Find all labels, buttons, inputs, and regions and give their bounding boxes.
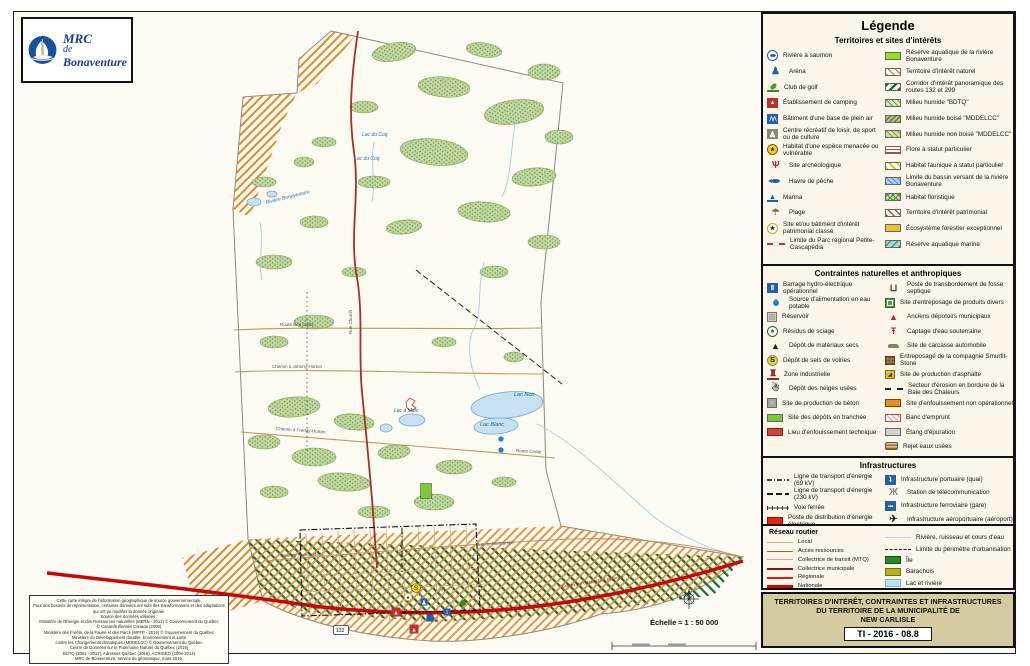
arena-icon bbox=[767, 67, 784, 77]
legend-item-label: Régionale bbox=[798, 574, 824, 580]
parklimit-icon bbox=[767, 243, 785, 245]
legend-item-label: Milieu humide non boisé "MDDELCC" bbox=[906, 131, 1011, 138]
tnat-icon bbox=[885, 68, 901, 76]
legend-item-label: Infrastructure aéroportuaire (aéroport) bbox=[907, 516, 1013, 523]
legend-box-infrastructures: Infrastructures Ligne de transport d'éne… bbox=[761, 456, 1015, 526]
nationale-icon bbox=[767, 585, 793, 588]
legend-item: Réservoir bbox=[767, 310, 881, 324]
map-canvas: ▲▲Sʇ♟★Ж Rivière BonaventureLac du CoqLac… bbox=[14, 12, 761, 651]
section-title-contraintes: Contraintes naturelles et anthropiques bbox=[767, 269, 1009, 278]
drop-icon bbox=[767, 298, 784, 308]
legend-item-label: Site et/ou bâtiment d'intérêt patrimonia… bbox=[783, 221, 881, 235]
credit-line: Pour des besoins de représentation, cert… bbox=[31, 603, 227, 608]
legend-item: Barrage hydro-électrique opérationnel bbox=[767, 281, 881, 295]
map-code: TI - 2016 - 08.8 bbox=[844, 627, 932, 641]
map-label: Rue Church bbox=[348, 309, 353, 334]
legend-item: Dépôt de sels de voiries bbox=[767, 353, 881, 367]
rejet-icon bbox=[885, 442, 898, 450]
riviereline-icon bbox=[885, 537, 911, 538]
legend-item-label: Limite du Parc régional Petite-Cascapédi… bbox=[790, 237, 881, 251]
credit-line: MRC de Bonaventure, service de géomatiqu… bbox=[31, 656, 227, 661]
marker-glyph: ▲ bbox=[393, 611, 399, 617]
legend-box-reseau-routier: Réseau routier LocalAccès ressourcesColl… bbox=[761, 524, 1015, 590]
legend-item: Dépôt des neiges usées bbox=[767, 382, 881, 396]
legend-item-label: Corridor d'intérêt panoramique des route… bbox=[906, 80, 1013, 94]
legend-item: Site de carcasse automobile bbox=[885, 339, 1013, 353]
acces-icon bbox=[767, 551, 793, 552]
legend-item-label: Limite du bassin versant de la rivière B… bbox=[906, 174, 1013, 188]
legend-item: Local bbox=[767, 538, 881, 547]
legend-item: Réserve aquatique de la rivière Bonavent… bbox=[885, 48, 1013, 64]
legend-item-label: Entreposage de la compagnie Smurfit-Ston… bbox=[900, 353, 1013, 367]
marker-glyph: S bbox=[414, 586, 418, 592]
legend-item-label: Secteur d'érosion en bordure de la Baie … bbox=[908, 382, 1013, 396]
legend-item: Lieu d'enfouissement technique bbox=[767, 425, 881, 439]
legend-title: Légende bbox=[767, 18, 1009, 33]
legend-item: Entreposage de la compagnie Smurfit-Ston… bbox=[885, 353, 1013, 367]
marker-glyph: Ж bbox=[439, 587, 446, 594]
legend-item: Bâtiment d'une base de plein air bbox=[767, 111, 881, 127]
legend-item-label: Site de production d'asphalte bbox=[900, 371, 981, 378]
colltransit-icon bbox=[767, 559, 793, 560]
legend-item: Habitat floristique bbox=[885, 189, 1013, 205]
legend-item-label: Voie ferrée bbox=[794, 504, 824, 511]
sciage-icon bbox=[767, 326, 778, 337]
golf-icon bbox=[767, 82, 779, 92]
legend-item: Source d'alimentation en eau potable bbox=[767, 295, 881, 309]
legend-item: Barachois bbox=[885, 566, 1013, 577]
legend-item-label: Site des dépôts en tranchée bbox=[788, 414, 866, 421]
legend-item-label: Réserve aquatique marine bbox=[906, 241, 980, 248]
legend-item-label: Club de golf bbox=[784, 84, 818, 91]
l69-icon bbox=[767, 479, 789, 481]
corridor-icon bbox=[885, 83, 901, 91]
legend-item: Habitat faunique à statut particulier bbox=[885, 158, 1013, 174]
legend-item-label: Milieu humide "BDTQ" bbox=[906, 99, 969, 106]
smurfit-icon bbox=[885, 356, 895, 365]
legend-item: Rejet eaux usées bbox=[885, 439, 1013, 453]
legend-item-label: Réservoir bbox=[782, 313, 809, 320]
credit-line: Ministère des Forêts, de la Faune et des… bbox=[31, 630, 227, 635]
legend-item: Station de télécommunication bbox=[885, 486, 1013, 499]
map-label: Lac Blanc bbox=[480, 422, 504, 428]
legend-item-label: Territoire d'intérêt naturel bbox=[906, 68, 975, 75]
legend-item-label: Infrastructure portuaire (quai) bbox=[901, 476, 983, 483]
legend-item: Milieu humide non boisé "MDDELCC" bbox=[885, 126, 1013, 142]
regionale-icon bbox=[767, 577, 793, 579]
legend-item: Accès ressources bbox=[767, 547, 881, 556]
section-title-territoires: Territoires et sites d'intérêts bbox=[767, 36, 1009, 45]
legend-item-label: Résidus de sciage bbox=[783, 328, 834, 335]
flore-icon bbox=[885, 146, 901, 154]
fishharbor-icon bbox=[767, 176, 784, 186]
archeo-icon bbox=[767, 161, 784, 171]
legend-item-label: Territoire d'intérêt patrimonial bbox=[906, 209, 987, 216]
legend-item: Établissement de camping bbox=[767, 95, 881, 111]
perimetre-icon bbox=[885, 549, 911, 550]
legend-item: Rivière à saumon bbox=[767, 48, 881, 64]
rail-icon bbox=[767, 506, 789, 510]
logo-line1: MRC bbox=[63, 32, 127, 46]
legend-item: Habitat d'une espèce menacée ou vulnérab… bbox=[767, 142, 881, 158]
logo-line3: Bonaventure bbox=[63, 56, 127, 69]
legend-item: Limite du Parc régional Petite-Cascapédi… bbox=[767, 236, 881, 252]
legend-item-label: Établissement de camping bbox=[783, 99, 857, 106]
turtle-icon bbox=[767, 144, 778, 155]
legend-item-label: Rejet eaux usées bbox=[903, 443, 952, 450]
title-line1: TERRITOIRES D'INTÉRÊT, CONTRAINTES ET IN… bbox=[765, 597, 1011, 606]
legend-item: Infrastructure portuaire (quai) bbox=[885, 473, 1013, 486]
legend-item-label: Barachois bbox=[906, 568, 934, 575]
legend-item: Club de golf bbox=[767, 79, 881, 95]
legend-item: Rivière, ruisseau et cours d'eau bbox=[885, 532, 1013, 543]
legend-item: Voie ferrée bbox=[767, 501, 881, 514]
legend-box-territoires: Légende Territoires et sites d'intérêts … bbox=[761, 12, 1015, 266]
legend-item: Infrastructure ferroviaire (gare) bbox=[885, 499, 1013, 512]
enfnonop-icon bbox=[885, 399, 901, 407]
marina-icon bbox=[767, 192, 778, 202]
local-icon bbox=[767, 542, 793, 543]
legend-item-label: Réserve aquatique de la rivière Bonavent… bbox=[906, 49, 1013, 63]
legend-item: Site archéologique bbox=[767, 158, 881, 174]
marker-glyph: ▲ bbox=[411, 628, 417, 634]
map-label: Route Ben Gallis bbox=[280, 322, 315, 327]
depotoirs-icon bbox=[885, 312, 902, 322]
tpat-icon bbox=[885, 209, 901, 217]
mrc-logo-box: MRC de Bonaventure bbox=[21, 17, 133, 83]
asphalte-icon bbox=[885, 370, 895, 379]
sels-icon bbox=[767, 355, 778, 366]
legend-item: Site de production de béton bbox=[767, 396, 881, 410]
legend-item: Milieu humide "BDTQ" bbox=[885, 95, 1013, 111]
mhboise-icon bbox=[885, 115, 901, 123]
legend-item-label: Havre de pêche bbox=[789, 178, 833, 185]
water-source-marker bbox=[498, 436, 503, 441]
ecosys-icon bbox=[885, 224, 901, 232]
legend-item-label: Limite du périmètre d'urbanisation bbox=[916, 546, 1011, 553]
legend-item: Site de production d'asphalte bbox=[885, 367, 1013, 381]
salmon-icon bbox=[767, 50, 778, 61]
marker-glyph: ♟ bbox=[421, 599, 426, 606]
legend-item: Secteur d'érosion en bordure de la Baie … bbox=[885, 382, 1013, 396]
legend-item-label: Infrastructure ferroviaire (gare) bbox=[901, 502, 986, 509]
scale-label: Échelle ≈ 1 : 50 000 bbox=[650, 618, 718, 627]
legend-item-label: Île bbox=[906, 557, 913, 564]
legend-item-label: Centre récréatif de loisir, de sport ou … bbox=[783, 127, 881, 141]
legend-item: Infrastructure aéroportuaire (aéroport) bbox=[885, 513, 1013, 526]
map-title-block: TERRITOIRES D'INTÉRÊT, CONTRAINTES ET IN… bbox=[761, 592, 1015, 648]
fosse-icon bbox=[885, 283, 902, 293]
legend-item: Captage d'eau souterraine bbox=[885, 324, 1013, 338]
legend-item-label: Anciens dépotoirs municipaux bbox=[907, 313, 991, 320]
legend-item-label: Dépôt de matériaux secs bbox=[789, 342, 859, 349]
legend-item: Limite du bassin versant de la rivière B… bbox=[885, 174, 1013, 190]
legend-item-label: Habitat d'une espèce menacée ou vulnérab… bbox=[783, 143, 881, 157]
legend-item: Régionale bbox=[767, 573, 881, 582]
legend-item-label: Dépôt de sels de voiries bbox=[783, 357, 850, 364]
legend-item-label: Habitat floristique bbox=[906, 194, 955, 201]
marina-marker bbox=[427, 615, 434, 622]
legend-item-label: Étang d'épuration bbox=[906, 429, 955, 436]
legend-item: Centre récréatif de loisir, de sport ou … bbox=[767, 126, 881, 142]
legend-item-label: Banc d'emprunt bbox=[906, 414, 950, 421]
ile-icon bbox=[885, 556, 901, 564]
legend-item: Nationale bbox=[767, 582, 881, 590]
recreation-icon bbox=[767, 129, 778, 139]
legend-item-label: Dépôt des neiges usées bbox=[789, 385, 857, 392]
legend-item-label: Habitat faunique à statut particulier bbox=[906, 162, 1003, 169]
map-label: Lac à Marc bbox=[394, 408, 419, 414]
legend-item-label: Zone industrielle bbox=[784, 371, 830, 378]
legend-item: Site et/ou bâtiment d'intérêt patrimonia… bbox=[767, 221, 881, 237]
legend-item-label: Source d'alimentation en eau potable bbox=[789, 296, 881, 310]
legend-item-label: Bâtiment d'une base de plein air bbox=[783, 115, 873, 122]
section-title-reseau: Réseau routier bbox=[769, 529, 881, 536]
legend-item: Étang d'épuration bbox=[885, 425, 1013, 439]
resmar-icon bbox=[885, 240, 901, 248]
legend-item: Plage bbox=[767, 205, 881, 221]
credits-block: Cette carte intègre de l'information géo… bbox=[29, 595, 229, 664]
legend-item: Zone industrielle bbox=[767, 367, 881, 381]
map-label: Lac du Coq bbox=[354, 156, 380, 162]
etang-icon bbox=[885, 428, 901, 436]
lacriviere-icon bbox=[885, 579, 901, 587]
neiges-icon bbox=[767, 384, 784, 394]
scale-bar bbox=[612, 642, 756, 650]
legend-item-label: Poste de transbordement de fosse septiqu… bbox=[907, 281, 1013, 295]
legend-item-label: Nationale bbox=[798, 583, 823, 589]
legend-item-label: Site de production de béton bbox=[782, 400, 859, 407]
legend-item-label: Ligne de transport d'énergie (230 kV) bbox=[794, 487, 881, 501]
legend-item: Site d'enfouissement non opérationnel bbox=[885, 396, 1013, 410]
telecom-icon bbox=[885, 488, 902, 498]
legend-item: Écosystème forestier exceptionnel bbox=[885, 221, 1013, 237]
enftech-icon bbox=[767, 428, 783, 436]
legend-item: Territoire d'intérêt naturel bbox=[885, 64, 1013, 80]
portuaire-icon bbox=[885, 475, 896, 485]
legend-item: Territoire d'intérêt patrimonial bbox=[885, 205, 1013, 221]
legend-item-label: Barrage hydro-électrique opérationnel bbox=[783, 281, 881, 295]
legend-item: Résidus de sciage bbox=[767, 324, 881, 338]
legend-item: Dépôt de matériaux secs bbox=[767, 339, 881, 353]
legend-item: Banc d'emprunt bbox=[885, 411, 1013, 425]
legend-item: Aréna bbox=[767, 64, 881, 80]
golf-marker bbox=[460, 600, 466, 606]
legend-item-label: Marina bbox=[783, 194, 802, 201]
legend-item: Ligne de transport d'énergie (69 kV) bbox=[767, 473, 881, 487]
legend-item-label: Collectrice municipale bbox=[798, 566, 854, 572]
legend-item: Milieu humide boisé "MDDELCC" bbox=[885, 111, 1013, 127]
aeroport-icon bbox=[885, 514, 902, 524]
mrc-logo-icon bbox=[27, 30, 58, 70]
tranchee-icon bbox=[767, 414, 783, 422]
legend-item: Collectrice municipale bbox=[767, 564, 881, 573]
legend-item: Réserve aquatique marine bbox=[885, 236, 1013, 252]
legend-box-contraintes: Contraintes naturelles et anthropiques B… bbox=[761, 264, 1015, 458]
legend-item-label: Rivière, ruisseau et cours d'eau bbox=[916, 534, 1004, 541]
pleinair-icon bbox=[767, 114, 778, 124]
legend-item-label: Lac et rivière bbox=[906, 580, 942, 587]
matsecs-icon bbox=[767, 341, 784, 351]
map-label: Chemin à Johnny-Horton bbox=[272, 364, 323, 369]
legend-item: Lac et rivière bbox=[885, 578, 1013, 589]
legend-item: Site des dépôts en tranchée bbox=[767, 411, 881, 425]
barrage-icon bbox=[767, 283, 778, 293]
legend-item: Site d'entreposage de produits divers bbox=[885, 295, 1013, 309]
legend-item-label: Aréna bbox=[789, 68, 806, 75]
habfaun-icon bbox=[885, 162, 901, 170]
gare-icon bbox=[885, 501, 896, 511]
legend-item-label: Rivière à saumon bbox=[783, 52, 832, 59]
banc-icon bbox=[885, 414, 901, 422]
legend-item: Ligne de transport d'énergie (230 kV) bbox=[767, 487, 881, 501]
mhnonboise-icon bbox=[885, 130, 901, 138]
bassin-icon bbox=[885, 177, 901, 185]
map-sheet: ▲▲Sʇ♟★Ж Rivière BonaventureLac du CoqLac… bbox=[13, 11, 1016, 654]
map-label: Lac du Coq bbox=[362, 132, 388, 138]
zoneind-icon bbox=[767, 370, 779, 380]
camping-icon bbox=[767, 98, 778, 108]
water-source-marker bbox=[498, 447, 503, 452]
legend-item-label: Site archéologique bbox=[789, 162, 841, 169]
beach-icon bbox=[767, 208, 784, 218]
legend-item: Anciens dépotoirs municipaux bbox=[885, 310, 1013, 324]
legend-item: Limite du périmètre d'urbanisation bbox=[885, 543, 1013, 554]
map-label: Lac Noir bbox=[514, 392, 536, 398]
legend-item: Flore à statut particulier bbox=[885, 142, 1013, 158]
heritage-icon bbox=[767, 223, 778, 234]
collmun-icon bbox=[767, 568, 793, 570]
legend-item-label: Écosystème forestier exceptionnel bbox=[906, 225, 1002, 232]
resaq-icon bbox=[885, 52, 901, 60]
title-line3: NEW CARLISLE bbox=[765, 615, 1011, 624]
legend-item: Corridor d'intérêt panoramique des route… bbox=[885, 79, 1013, 95]
legend-item-label: Station de télécommunication bbox=[907, 489, 990, 496]
legend-panel: Légende Territoires et sites d'intérêts … bbox=[761, 12, 1015, 648]
barachois-icon bbox=[885, 568, 901, 576]
trench-deposit-site bbox=[421, 484, 432, 499]
produits-icon bbox=[885, 298, 895, 308]
legend-item-label: Accès ressources bbox=[798, 548, 844, 554]
habflor-icon bbox=[885, 193, 901, 201]
mrc-logo-text: MRC de Bonaventure bbox=[63, 32, 127, 69]
legend-item-label: Milieu humide boisé "MDDELCC" bbox=[906, 115, 999, 122]
legend-item: Marina bbox=[767, 189, 881, 205]
reservoir-icon bbox=[767, 312, 777, 322]
legend-item-label: Collectrice de transit (MTQ) bbox=[798, 557, 869, 563]
map-label: 132 bbox=[336, 628, 345, 634]
legend-item-label: Plage bbox=[789, 209, 805, 216]
legend-item-label: Site d'entreposage de produits divers bbox=[900, 299, 1004, 306]
erosion-icon bbox=[885, 388, 903, 390]
title-line2: DU TERRITOIRE DE LA MUNICIPALITÉ DE bbox=[765, 606, 1011, 615]
legend-item-label: Lieu d'enfouissement technique bbox=[788, 429, 876, 436]
legend-item-label: Site de carcasse automobile bbox=[907, 342, 986, 349]
beton-icon bbox=[767, 398, 777, 408]
legend-item: Poste de transbordement de fosse septiqu… bbox=[885, 281, 1013, 295]
legend-item: Havre de pêche bbox=[767, 174, 881, 190]
l230-icon bbox=[767, 493, 789, 495]
carcasse-icon bbox=[885, 341, 902, 351]
legend-item-label: Ligne de transport d'énergie (69 kV) bbox=[794, 473, 881, 487]
legend-item: Île bbox=[885, 555, 1013, 566]
legend-item: Collectrice de transit (MTQ) bbox=[767, 556, 881, 565]
legend-item-label: Flore à statut particulier bbox=[906, 146, 972, 153]
legend-item-label: Site d'enfouissement non opérationnel bbox=[906, 400, 1013, 407]
legend-item-label: Captage d'eau souterraine bbox=[907, 328, 981, 335]
section-title-infrastructures: Infrastructures bbox=[767, 461, 1009, 470]
legend-item-label: Local bbox=[798, 539, 812, 545]
mhbdtq-icon bbox=[885, 99, 901, 107]
captage-icon bbox=[885, 326, 902, 336]
